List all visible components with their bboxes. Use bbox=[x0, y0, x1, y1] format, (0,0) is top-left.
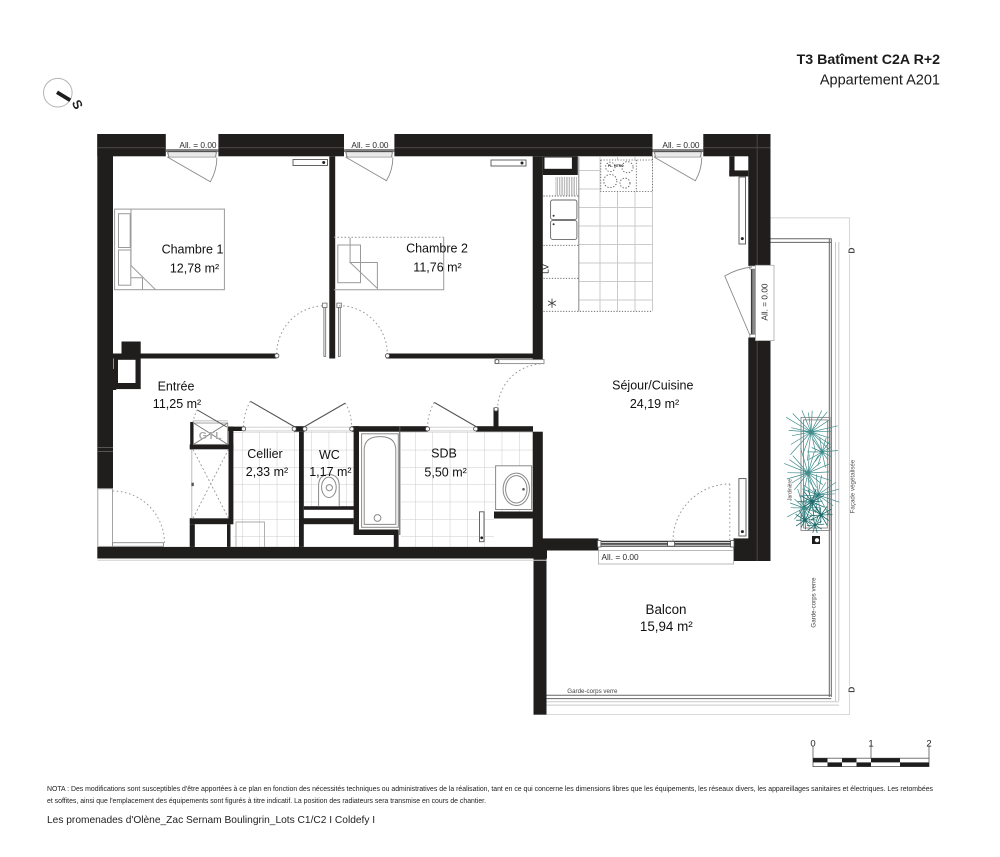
svg-text:Chambre 1: Chambre 1 bbox=[162, 242, 224, 256]
svg-text:Séjour/Cuisine: Séjour/Cuisine bbox=[612, 378, 693, 392]
svg-text:Garde-corps verre: Garde-corps verre bbox=[567, 688, 618, 695]
svg-text:All. = 0.00: All. = 0.00 bbox=[351, 140, 389, 150]
svg-text:12,78 m²: 12,78 m² bbox=[170, 262, 219, 276]
svg-text:5,50 m²: 5,50 m² bbox=[424, 466, 466, 480]
svg-text:Entrée: Entrée bbox=[158, 379, 195, 393]
svg-text:11,25 m²: 11,25 m² bbox=[153, 397, 201, 411]
svg-text:et soffites, ainsi que l'empla: et soffites, ainsi que l'emplacement des… bbox=[47, 798, 486, 805]
svg-text:1,17 m²: 1,17 m² bbox=[309, 465, 351, 479]
svg-text:WC: WC bbox=[319, 448, 340, 462]
svg-text:Jardinière: Jardinière bbox=[788, 479, 794, 501]
svg-text:15,94 m²: 15,94 m² bbox=[640, 619, 693, 634]
svg-text:11,76 m²: 11,76 m² bbox=[413, 261, 461, 275]
svg-text:PL. VITRO: PL. VITRO bbox=[608, 164, 624, 168]
svg-text:GTL: GTL bbox=[199, 430, 223, 442]
svg-text:0: 0 bbox=[810, 739, 815, 750]
svg-text:All. = 0.00: All. = 0.00 bbox=[602, 552, 640, 562]
svg-text:All. = 0.00: All. = 0.00 bbox=[179, 140, 217, 150]
svg-text:Balcon: Balcon bbox=[646, 602, 687, 617]
svg-text:Chambre 2: Chambre 2 bbox=[406, 242, 468, 256]
svg-text:2: 2 bbox=[926, 739, 931, 750]
svg-text:Cellier: Cellier bbox=[247, 447, 282, 461]
svg-text:All. = 0.00: All. = 0.00 bbox=[662, 140, 700, 150]
svg-text:T3 Batîment C2A R+2: T3 Batîment C2A R+2 bbox=[797, 52, 940, 68]
svg-text:Appartement A201: Appartement A201 bbox=[820, 73, 940, 89]
svg-text:Garde-corps verre: Garde-corps verre bbox=[811, 577, 818, 628]
svg-text:24,19 m²: 24,19 m² bbox=[630, 397, 679, 411]
svg-text:NOTA : Des modifications sont: NOTA : Des modifications sont susceptibl… bbox=[47, 786, 934, 793]
svg-text:SDB: SDB bbox=[431, 447, 457, 461]
svg-text:2,33 m²: 2,33 m² bbox=[246, 465, 288, 479]
svg-text:Façade végétalisée: Façade végétalisée bbox=[850, 459, 857, 513]
svg-text:D: D bbox=[847, 687, 857, 693]
svg-text:Les promenades d'Olène_Zac Ser: Les promenades d'Olène_Zac Sernam Boulin… bbox=[47, 815, 375, 826]
svg-text:All. = 0.00: All. = 0.00 bbox=[760, 283, 770, 321]
svg-text:D: D bbox=[847, 247, 857, 253]
svg-text:1: 1 bbox=[868, 739, 873, 750]
svg-text:LV: LV bbox=[541, 264, 551, 274]
